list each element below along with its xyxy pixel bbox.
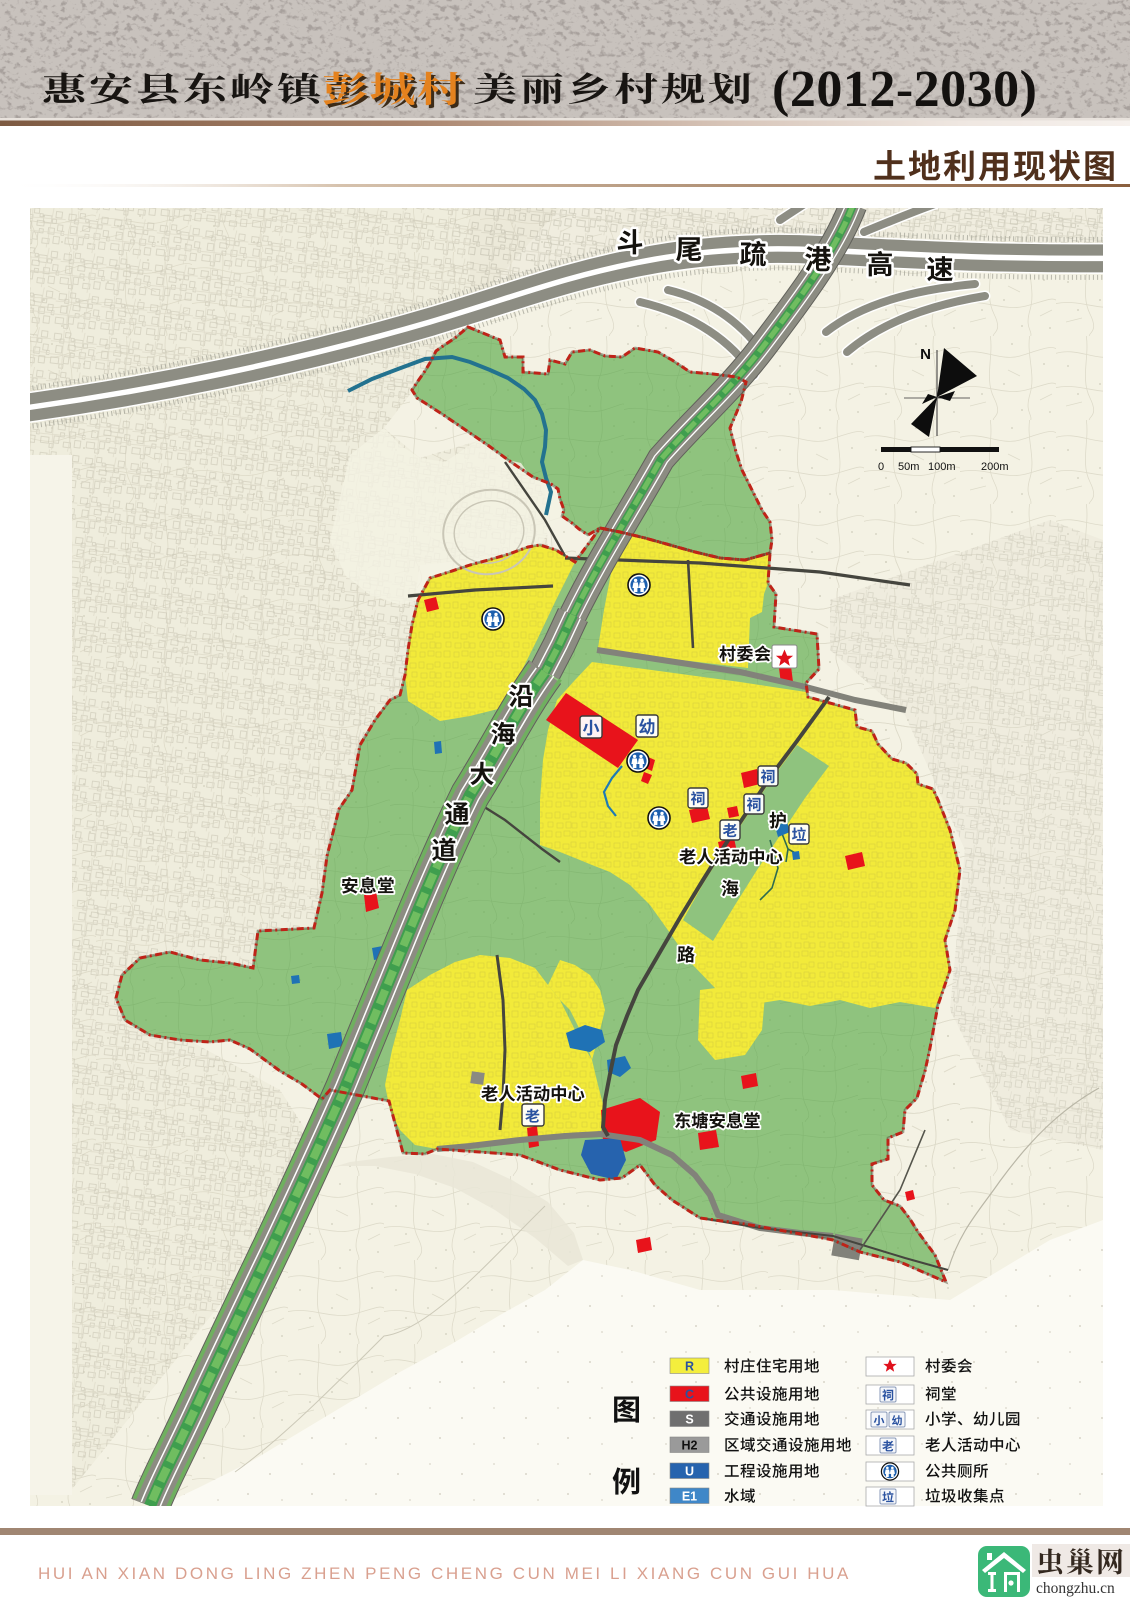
svg-text:C: C <box>685 1388 694 1402</box>
svg-text:chongzhu.cn: chongzhu.cn <box>1036 1580 1115 1597</box>
svg-text:0: 0 <box>878 461 884 473</box>
svg-text:S: S <box>685 1413 693 1427</box>
svg-text:H2: H2 <box>682 1439 698 1453</box>
svg-text:100m: 100m <box>928 461 956 473</box>
svg-text:E1: E1 <box>682 1490 697 1504</box>
svg-text:HUI AN XIAN DONG LING ZHEN PEN: HUI AN XIAN DONG LING ZHEN PENG CHENG CU… <box>38 1564 851 1583</box>
svg-text:R: R <box>685 1360 694 1374</box>
svg-text:N: N <box>920 346 931 363</box>
svg-text:U: U <box>685 1465 694 1479</box>
svg-text:200m: 200m <box>981 461 1009 473</box>
svg-text:(2012-2030): (2012-2030) <box>772 61 1037 118</box>
svg-text:50m: 50m <box>898 461 919 473</box>
